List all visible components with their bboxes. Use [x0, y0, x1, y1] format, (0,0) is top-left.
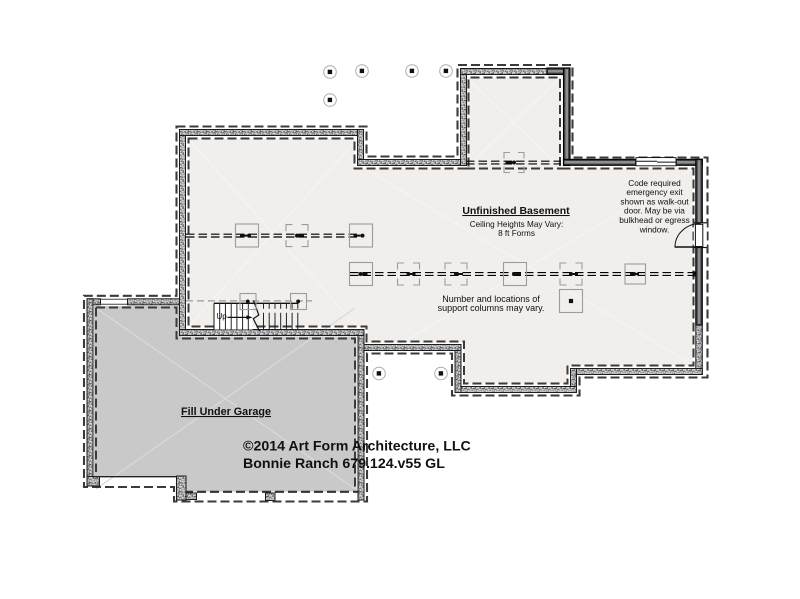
svg-text:Up: Up — [217, 312, 228, 321]
svg-text:Fill Under Garage: Fill Under Garage — [181, 406, 271, 418]
svg-text:Bonnie Ranch 679.124.v55 GL: Bonnie Ranch 679.124.v55 GL — [243, 456, 445, 472]
svg-text:8 ft Forms: 8 ft Forms — [498, 229, 535, 238]
svg-text:Ceiling Heights May Vary:: Ceiling Heights May Vary: — [470, 220, 564, 229]
svg-text:©2014 Art Form Architecture, L: ©2014 Art Form Architecture, LLC — [243, 439, 471, 455]
svg-text:Unfinished Basement: Unfinished Basement — [462, 205, 570, 217]
svg-text:window.: window. — [639, 224, 670, 234]
svg-text:support columns may vary.: support columns may vary. — [438, 303, 545, 313]
